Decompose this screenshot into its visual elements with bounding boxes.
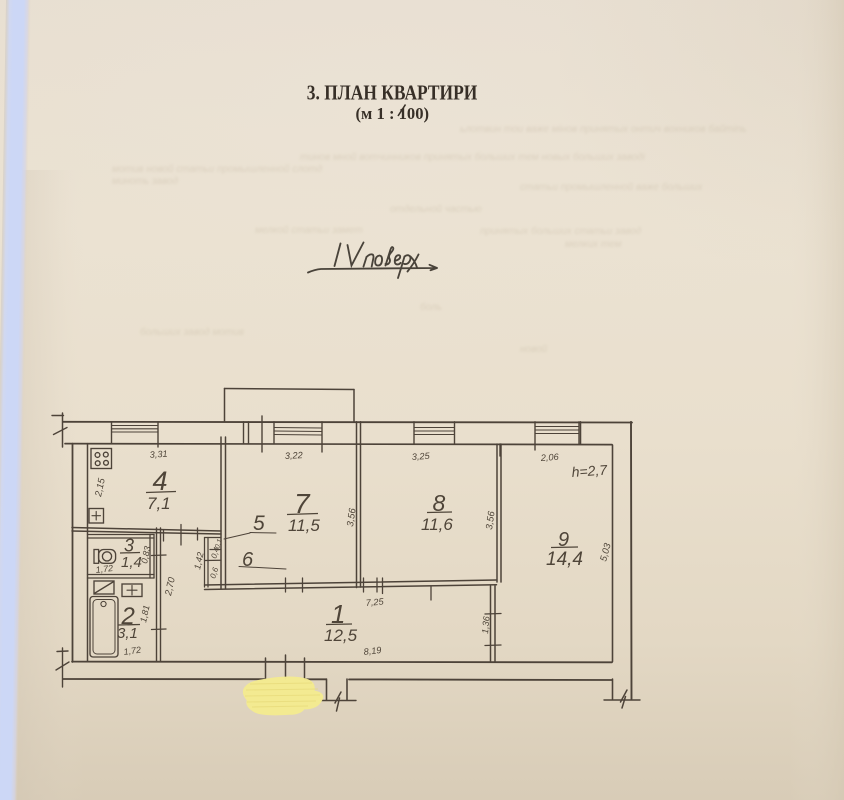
svg-text:новой: новой [520, 344, 548, 355]
svg-text:3,22: 3,22 [285, 450, 303, 461]
svg-text:ьлотвин тои важе мінов приняты: ьлотвин тои важе мінов принятых онтич во… [460, 123, 747, 135]
svg-text:(м 1 : 100): (м 1 : 100) [356, 104, 430, 123]
svg-text:больших завод мотив: больших завод мотив [140, 326, 244, 338]
svg-text:1,72: 1,72 [95, 563, 114, 575]
svg-text:3,1: 3,1 [117, 625, 138, 642]
svg-text:12,5: 12,5 [324, 626, 358, 645]
svg-text:1,4: 1,4 [121, 554, 142, 571]
svg-text:3,31: 3,31 [149, 449, 168, 460]
svg-text:тинов мной вотчинников приняты: тинов мной вотчинников принятых больших … [300, 151, 646, 163]
svg-text:1,36: 1,36 [480, 616, 491, 634]
svg-text:6: 6 [242, 549, 254, 571]
svg-text:отдельной частью: отдельной частью [390, 204, 482, 215]
svg-text:11,5: 11,5 [288, 516, 320, 535]
svg-text:принятых больших статьи завод: принятых больших статьи завод [480, 225, 642, 237]
svg-text:7,25: 7,25 [365, 596, 385, 608]
svg-text:мелкой статьи замет: мелкой статьи замет [255, 225, 363, 236]
svg-text:миноть завод: миноть завод [112, 176, 179, 187]
svg-text:3,25: 3,25 [411, 451, 430, 462]
svg-text:статьи промышленной важе больш: статьи промышленной важе больших [520, 181, 703, 193]
svg-text:2,06: 2,06 [539, 452, 559, 463]
svg-text:боль: боль [420, 301, 442, 313]
svg-text:7,1: 7,1 [147, 494, 171, 513]
svg-text:3. ПЛАН КВАРТИРИ: 3. ПЛАН КВАРТИРИ [307, 81, 478, 105]
svg-text:мелких тем: мелких тем [565, 239, 622, 250]
svg-text:h=2,7: h=2,7 [571, 461, 609, 480]
svg-text:14,4: 14,4 [546, 549, 583, 570]
svg-text:мотив новой статьи промышленно: мотив новой статьи промышленной слотд [112, 164, 323, 175]
svg-text:5: 5 [253, 512, 265, 535]
svg-text:11,6: 11,6 [421, 515, 453, 534]
